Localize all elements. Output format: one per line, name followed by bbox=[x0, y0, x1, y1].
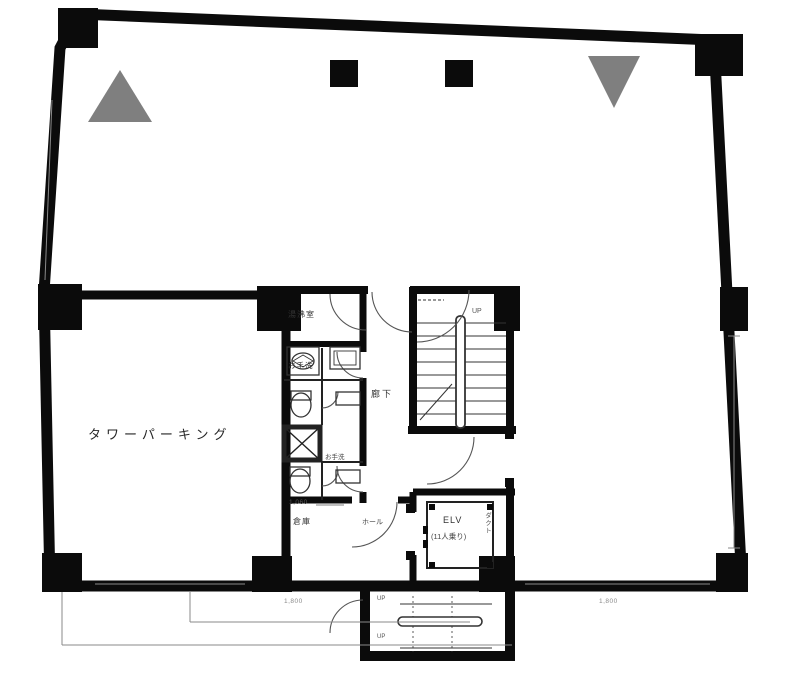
column bbox=[716, 553, 748, 592]
column bbox=[720, 287, 748, 331]
stairs-up-label-center: UP bbox=[472, 308, 482, 315]
room-label-elevator: ELV bbox=[443, 516, 462, 525]
room-label-hall: ホール bbox=[362, 519, 383, 526]
outer-walls bbox=[44, 14, 742, 586]
room-label-storage: 倉庫 bbox=[293, 518, 311, 526]
vanity bbox=[330, 347, 360, 369]
staircase-center bbox=[417, 300, 506, 428]
room-label-elevator-capacity: (11人乗り) bbox=[431, 533, 466, 541]
interior-walls bbox=[44, 287, 520, 656]
stair-rail bbox=[456, 316, 465, 428]
triangle-up-marker bbox=[88, 70, 152, 122]
dimension-bottom-right: 1,800 bbox=[599, 599, 618, 606]
stairs-up-label-bottom-1: UP bbox=[377, 596, 385, 602]
stairs-up-label-bottom-2: UP bbox=[377, 634, 385, 640]
toilet bbox=[290, 469, 310, 493]
room-label-kitchenette: 湯沸室 bbox=[288, 311, 315, 319]
partitions bbox=[284, 348, 363, 500]
column bbox=[330, 60, 358, 87]
room-label-corridor: 廊下 bbox=[371, 390, 393, 399]
dimension-bottom-left: 1,800 bbox=[284, 599, 303, 606]
room-label-restroom-upper: お手洗 bbox=[288, 362, 314, 370]
window-lines bbox=[45, 100, 740, 645]
toilet bbox=[291, 393, 311, 417]
room-label-tower-parking: タワーパーキング bbox=[88, 428, 231, 441]
column bbox=[695, 34, 743, 76]
triangle-down-marker bbox=[588, 56, 640, 108]
column bbox=[445, 60, 473, 87]
room-label-restroom-lower: お手洗 bbox=[325, 455, 345, 462]
floor-plan-drawing bbox=[0, 0, 787, 685]
column bbox=[42, 553, 82, 592]
floor-plan-page: タワーパーキング 湯沸室 お手洗 廊下 お手洗 倉庫 1,060 ホール ELV… bbox=[0, 0, 787, 685]
columns bbox=[38, 8, 748, 592]
column bbox=[58, 8, 98, 48]
dimension-storage: 1,060 bbox=[289, 500, 308, 507]
room-label-duct: ダクト bbox=[483, 512, 490, 535]
staircase-bottom bbox=[398, 596, 492, 652]
orientation-markers bbox=[88, 56, 640, 122]
urinal bbox=[336, 392, 360, 405]
